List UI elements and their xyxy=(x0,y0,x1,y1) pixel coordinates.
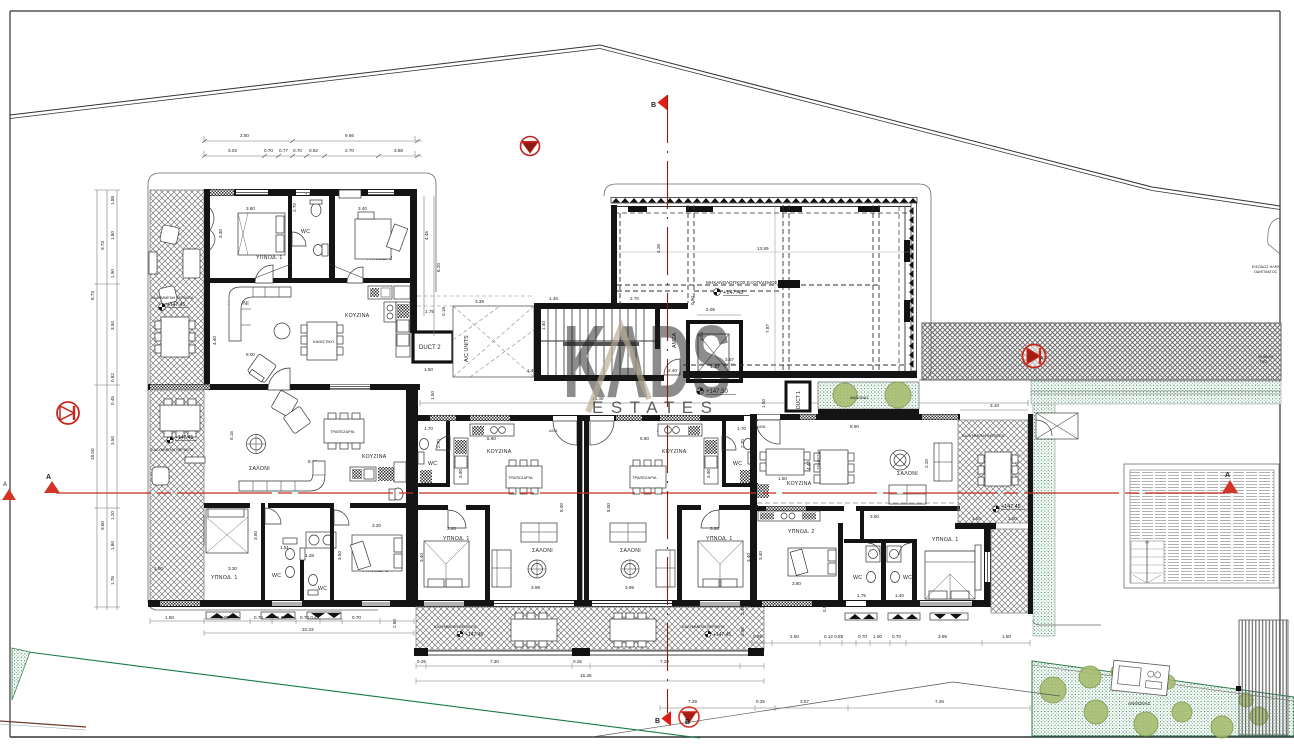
svg-text:1.76: 1.76 xyxy=(110,576,115,585)
svg-text:WC: WC xyxy=(428,461,437,467)
svg-text:1.50: 1.50 xyxy=(165,615,174,620)
svg-text:ΚΑΛΥΜΜΕΝΗ ΒΕΡΑΝΤΑ: ΚΑΛΥΜΜΕΝΗ ΒΕΡΑΝΤΑ xyxy=(151,448,194,452)
svg-text:0.18: 0.18 xyxy=(441,307,446,316)
svg-text:ΕΙΣΟΔΟΣ ΗΛΕΚ: ΕΙΣΟΔΟΣ ΗΛΕΚ xyxy=(1252,265,1280,269)
svg-text:0.53: 0.53 xyxy=(822,603,827,612)
svg-text:0.70: 0.70 xyxy=(352,615,361,620)
svg-text:+147.45: +147.45 xyxy=(1001,504,1021,510)
svg-text:3.99: 3.99 xyxy=(938,634,947,639)
svg-text:2.70: 2.70 xyxy=(345,148,354,153)
svg-text:3.99: 3.99 xyxy=(625,585,634,590)
svg-text:1.50: 1.50 xyxy=(972,516,981,521)
svg-text:ΚΑΛΥΜΜΕΝΗ ΒΕΡΑΝΤΑ: ΚΑΛΥΜΜΕΝΗ ΒΕΡΑΝΤΑ xyxy=(962,434,1005,438)
svg-text:1.65: 1.65 xyxy=(305,192,314,197)
svg-text:5.15: 5.15 xyxy=(229,431,234,440)
svg-text:ΑΝΘΩΝΑΣ: ΑΝΘΩΝΑΣ xyxy=(1128,701,1151,706)
svg-text:ΜΗΧΑΝΟΛΟΓΙΚΟΣ ΕΞΟΠΛΙΣΜΟΣ: ΜΗΧΑΝΟΛΟΓΙΚΟΣ ΕΞΟΠΛΙΣΜΟΣ xyxy=(706,280,778,285)
svg-text:+147.45: +147.45 xyxy=(723,290,743,296)
svg-text:ΥΠΝΟΔ. 1: ΥΠΝΟΔ. 1 xyxy=(932,537,959,543)
svg-text:ΚΑΛΥΜΜΕΝΗ ΒΕΡΑΝΤΑ: ΚΑΛΥΜΜΕΝΗ ΒΕΡΑΝΤΑ xyxy=(434,625,477,629)
svg-text:5.60: 5.60 xyxy=(640,436,649,441)
svg-text:WC: WC xyxy=(903,575,912,581)
svg-text:ΚΑΛΥΜΜΕΝΗ ΒΕΡΑΝΤΑ: ΚΑΛΥΜΜΕΝΗ ΒΕΡΑΝΤΑ xyxy=(682,625,725,629)
svg-text:1.80: 1.80 xyxy=(110,541,115,550)
svg-text:3.20: 3.20 xyxy=(372,523,381,528)
svg-text:3.50: 3.50 xyxy=(337,551,342,560)
svg-text:ΤΡΑΠΕΖΑΡΙΑ: ΤΡΑΠΕΖΑΡΙΑ xyxy=(330,429,355,434)
svg-text:2.70: 2.70 xyxy=(292,203,297,212)
svg-text:1.75: 1.75 xyxy=(425,309,434,314)
svg-text:ΥΠΝΟΔ. 1: ΥΠΝΟΔ. 1 xyxy=(256,255,283,261)
svg-text:0.70: 0.70 xyxy=(858,634,867,639)
svg-text:3.68: 3.68 xyxy=(394,148,403,153)
svg-text:9.66: 9.66 xyxy=(345,133,354,138)
svg-text:1.50: 1.50 xyxy=(778,476,787,481)
svg-text:1.40: 1.40 xyxy=(541,321,546,330)
svg-text:3.40: 3.40 xyxy=(358,206,367,211)
svg-text:B: B xyxy=(651,102,656,109)
svg-text:8.00: 8.00 xyxy=(606,503,611,512)
svg-text:1.20: 1.20 xyxy=(110,511,115,520)
svg-text:A: A xyxy=(1225,472,1230,479)
svg-text:1.88: 1.88 xyxy=(110,196,115,205)
svg-text:4.05: 4.05 xyxy=(220,615,229,620)
svg-text:3.57: 3.57 xyxy=(800,699,809,704)
svg-text:0.77: 0.77 xyxy=(279,148,288,153)
svg-text:+147.45: +147.45 xyxy=(465,632,483,638)
svg-text:+147.45: +147.45 xyxy=(175,435,193,441)
svg-text:B: B xyxy=(685,719,690,726)
svg-text:2.50: 2.50 xyxy=(240,133,249,138)
svg-text:+147.45: +147.45 xyxy=(167,302,185,308)
svg-text:WC: WC xyxy=(272,573,281,579)
svg-text:WC: WC xyxy=(318,586,327,592)
svg-text:0.25: 0.25 xyxy=(756,699,765,704)
svg-text:ΚΟΥΖΙΝΑ: ΚΟΥΖΙΝΑ xyxy=(662,449,687,455)
svg-text:A/C UNITS: A/C UNITS xyxy=(464,335,470,362)
svg-text:ΟΔΗΓΜΑΤΟΣ: ΟΔΗΓΜΑΤΟΣ xyxy=(1254,270,1278,274)
svg-text:0.25: 0.25 xyxy=(573,659,582,664)
svg-text:ESTATES: ESTATES xyxy=(592,398,719,417)
svg-text:1.00: 1.00 xyxy=(873,634,882,639)
svg-text:0.92: 0.92 xyxy=(309,148,318,153)
svg-text:10.33: 10.33 xyxy=(302,627,314,632)
svg-text:1.80: 1.80 xyxy=(110,231,115,240)
svg-text:3.60: 3.60 xyxy=(870,514,879,519)
svg-text:ΣΑΛΟΝΙ: ΣΑΛΟΝΙ xyxy=(897,471,918,477)
svg-text:18.50: 18.50 xyxy=(90,448,95,460)
svg-text:1.50: 1.50 xyxy=(430,391,435,400)
svg-text:7.30: 7.30 xyxy=(490,659,499,664)
svg-text:6.20: 6.20 xyxy=(436,263,441,272)
svg-text:9.00: 9.00 xyxy=(246,352,255,357)
svg-text:3.03: 3.03 xyxy=(228,148,237,153)
svg-text:3.90: 3.90 xyxy=(706,469,711,478)
svg-text:3.80: 3.80 xyxy=(792,581,801,586)
svg-text:WC: WC xyxy=(853,575,862,581)
svg-text:13.89: 13.89 xyxy=(757,246,769,251)
svg-text:7.29: 7.29 xyxy=(688,699,697,704)
svg-text:3.90: 3.90 xyxy=(458,469,463,478)
svg-text:2.40: 2.40 xyxy=(740,606,745,615)
svg-text:WC: WC xyxy=(733,461,742,467)
svg-text:3.30: 3.30 xyxy=(228,566,237,571)
svg-text:3.50: 3.50 xyxy=(253,531,258,540)
svg-text:1.70: 1.70 xyxy=(737,426,746,431)
svg-text:0.12 0.88: 0.12 0.88 xyxy=(824,634,844,639)
svg-text:4.40: 4.40 xyxy=(806,461,811,470)
svg-text:3.40: 3.40 xyxy=(758,551,763,560)
svg-text:3.99: 3.99 xyxy=(531,585,540,590)
svg-text:3.20: 3.20 xyxy=(710,526,719,531)
svg-text:0.95: 0.95 xyxy=(740,627,745,636)
svg-text:1.75: 1.75 xyxy=(857,593,866,598)
svg-text:3.40: 3.40 xyxy=(419,553,424,562)
svg-text:15.35: 15.35 xyxy=(580,673,592,678)
svg-text:4.45: 4.45 xyxy=(424,231,429,240)
svg-text:ΚΟΥΖΙΝΑ: ΚΟΥΖΙΝΑ xyxy=(787,481,812,487)
svg-text:Δ203: Δ203 xyxy=(549,429,557,433)
svg-text:1.50: 1.50 xyxy=(424,367,433,372)
svg-text:0.70: 0.70 xyxy=(264,148,273,153)
svg-text:0.70: 0.70 xyxy=(254,615,263,620)
svg-text:7.87: 7.87 xyxy=(765,324,770,333)
svg-text:A: A xyxy=(3,482,7,488)
svg-text:1.50: 1.50 xyxy=(1002,634,1011,639)
svg-text:ΤΡΑΠΕΖΑΡ: ΤΡΑΠΕΖΑΡ xyxy=(816,449,821,470)
svg-text:3.30: 3.30 xyxy=(218,229,223,238)
svg-text:1.40: 1.40 xyxy=(895,593,904,598)
svg-text:1.90: 1.90 xyxy=(110,269,115,278)
svg-text:+147.45: +147.45 xyxy=(713,632,731,638)
svg-text:DUCT 2: DUCT 2 xyxy=(419,345,441,351)
svg-text:DUCT 1: DUCT 1 xyxy=(796,391,802,409)
svg-text:2.70: 2.70 xyxy=(740,439,745,448)
svg-text:1.50: 1.50 xyxy=(1008,516,1017,521)
svg-text:8.73: 8.73 xyxy=(90,291,95,300)
svg-text:0.95: 0.95 xyxy=(753,634,762,639)
svg-text:0.45: 0.45 xyxy=(110,396,115,405)
svg-text:3.10: 3.10 xyxy=(990,403,999,408)
svg-text:ΥΠΝΟΔ. 2: ΥΠΝΟΔ. 2 xyxy=(788,529,815,535)
svg-text:ΥΠΝΟΔ. 1: ΥΠΝΟΔ. 1 xyxy=(211,575,238,581)
svg-text:1.51: 1.51 xyxy=(280,545,289,550)
svg-text:1.50: 1.50 xyxy=(154,566,163,571)
svg-text:1.50: 1.50 xyxy=(277,615,286,620)
svg-text:2.50: 2.50 xyxy=(790,634,799,639)
svg-text:2.70: 2.70 xyxy=(630,296,639,301)
svg-text:0.70 0.45: 0.70 0.45 xyxy=(300,615,320,620)
svg-text:2.60: 2.60 xyxy=(392,619,397,628)
svg-text:Δ208: Δ208 xyxy=(757,425,765,429)
svg-text:0.70: 0.70 xyxy=(293,148,302,153)
svg-text:1.70: 1.70 xyxy=(424,426,433,431)
svg-text:ΣΑΛΟΝΙ: ΣΑΛΟΝΙ xyxy=(620,548,641,554)
svg-text:B: B xyxy=(655,718,660,725)
svg-text:ΚΟΥΖΙΝΑ: ΚΟΥΖΙΝΑ xyxy=(345,313,370,319)
svg-text:WC: WC xyxy=(301,229,310,235)
svg-text:ΤΡΑΠΕΖΑΡΙΑ: ΤΡΑΠΕΖΑΡΙΑ xyxy=(632,475,657,480)
svg-text:5.60: 5.60 xyxy=(487,436,496,441)
svg-text:A: A xyxy=(46,474,51,481)
svg-text:3.60: 3.60 xyxy=(246,206,255,211)
svg-text:ΤΡΑΠΕΖΑΡΙΑ: ΤΡΑΠΕΖΑΡΙΑ xyxy=(508,475,533,480)
svg-text:1.50: 1.50 xyxy=(761,399,766,408)
svg-text:8.00: 8.00 xyxy=(559,503,564,512)
svg-text:3.50: 3.50 xyxy=(110,321,115,330)
svg-text:0.70: 0.70 xyxy=(892,634,901,639)
svg-text:1.45: 1.45 xyxy=(549,296,558,301)
svg-text:ΠΕΖ: ΠΕΖ xyxy=(1260,360,1268,364)
svg-text:ΚΑΘΙΣΤΙΚΟ: ΚΑΘΙΣΤΙΚΟ xyxy=(313,339,334,344)
svg-text:3.39: 3.39 xyxy=(475,299,484,304)
svg-text:3.50: 3.50 xyxy=(110,436,115,445)
svg-text:7.26: 7.26 xyxy=(935,699,944,704)
svg-text:ΑΝΘΩΝΑΣ: ΑΝΘΩΝΑΣ xyxy=(850,396,869,400)
svg-text:4.26: 4.26 xyxy=(656,244,661,253)
svg-text:ΚΕΦΑΛΟ: ΚΕΦΑΛΟ xyxy=(1258,355,1273,359)
svg-text:9.73: 9.73 xyxy=(100,241,105,250)
svg-text:0.25: 0.25 xyxy=(417,659,426,664)
svg-text:8.90: 8.90 xyxy=(850,424,859,429)
svg-text:9.60: 9.60 xyxy=(100,521,105,530)
svg-text:1.40: 1.40 xyxy=(527,368,536,373)
svg-text:ΚΑΛΥΜΜΕΝΗ ΒΕΡΑΝΤΑ: ΚΑΛΥΜΜΕΝΗ ΒΕΡΑΝΤΑ xyxy=(151,296,194,300)
svg-text:4.40: 4.40 xyxy=(212,336,217,345)
svg-text:ΚΟΥΖΙΝΑ: ΚΟΥΖΙΝΑ xyxy=(487,449,512,455)
svg-text:ΚΟΥΖΙΝΑ: ΚΟΥΖΙΝΑ xyxy=(362,454,387,460)
svg-text:2.20: 2.20 xyxy=(924,459,929,468)
svg-text:3.20: 3.20 xyxy=(447,526,456,531)
svg-text:1.28: 1.28 xyxy=(305,553,314,558)
svg-text:ΣΑΛΟΝΙ: ΣΑΛΟΝΙ xyxy=(532,548,553,554)
svg-text:0.82: 0.82 xyxy=(110,373,115,382)
svg-text:ΣΑΛΟΝΙ: ΣΑΛΟΝΙ xyxy=(249,466,270,472)
